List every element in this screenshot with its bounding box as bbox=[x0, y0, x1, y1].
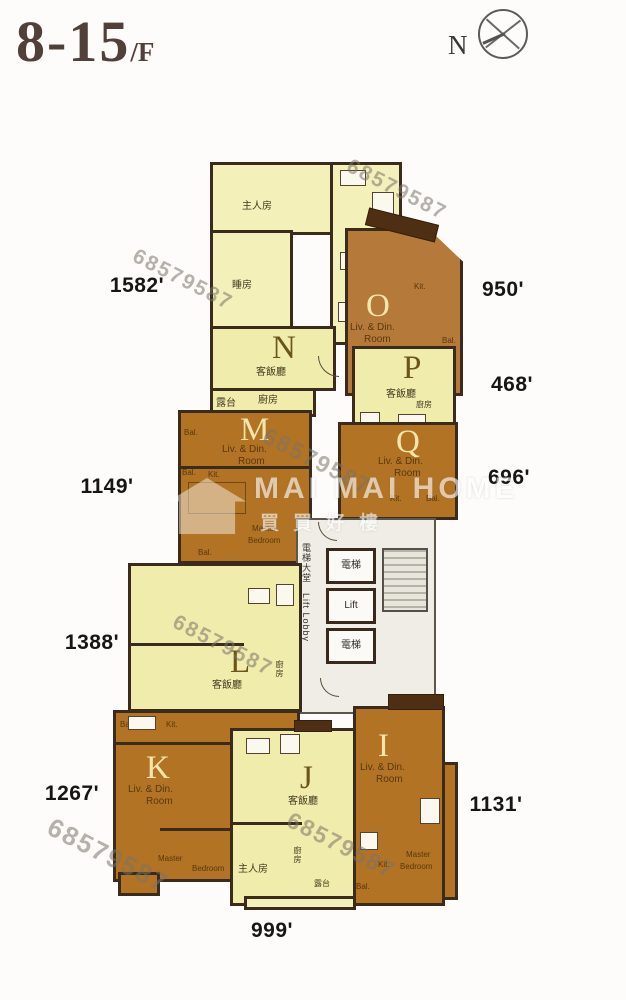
room-label-balcony: Bal. bbox=[356, 882, 370, 891]
room-label-master2: Bedroom bbox=[400, 862, 432, 871]
room-label-balcony: Bal. bbox=[198, 548, 212, 557]
staircase bbox=[382, 548, 428, 612]
area-label-l: 1388' bbox=[42, 631, 142, 655]
floorplan-page: 8-15/F N 主人房 睡房 N 客飯廳 露台 廚房 O Liv. & Din… bbox=[0, 0, 626, 1000]
brand-name: MAI MAI HOME bbox=[254, 472, 519, 506]
floor-range: 8-15 bbox=[16, 9, 130, 74]
compass-north-label: N bbox=[448, 30, 468, 61]
lobby-label-cn: 電梯大堂 bbox=[301, 543, 311, 583]
room-label-master: 主人房 bbox=[242, 197, 272, 212]
lift-shaft: 電梯 bbox=[326, 628, 376, 664]
unit-o-letter: O bbox=[366, 288, 390, 325]
room-label-kitchen: 廚房 bbox=[274, 660, 285, 678]
fixture bbox=[280, 734, 300, 754]
room-label-balcony: Bal. bbox=[442, 336, 456, 345]
wall-segment bbox=[388, 694, 444, 710]
room-label-living: Liv. & Din. bbox=[360, 762, 405, 773]
room-label-balcony: Bal. bbox=[184, 428, 198, 437]
area-label-o: 950' bbox=[458, 278, 548, 302]
area-label-m: 1149' bbox=[57, 475, 157, 499]
room-label-kitchen: 廚房 bbox=[258, 391, 278, 406]
room-label-living2: Room bbox=[146, 796, 173, 807]
unit-i-right-wing bbox=[442, 762, 458, 900]
room-label-kitchen: 廚房 bbox=[292, 846, 303, 864]
lobby-label-en: Lift Lobby bbox=[301, 593, 311, 642]
room-label-living: 客飯廳 bbox=[288, 792, 318, 807]
lift-shaft: 電梯 bbox=[326, 548, 376, 584]
unit-p-letter: P bbox=[403, 350, 421, 387]
unit-k-letter: K bbox=[146, 750, 170, 787]
floor-suffix: /F bbox=[130, 37, 154, 67]
room-label-master2: Bedroom bbox=[192, 864, 224, 873]
unit-n-master-room bbox=[210, 162, 335, 235]
fixture bbox=[246, 738, 270, 754]
unit-n-letter: N bbox=[272, 330, 296, 367]
room-label-living: 客飯廳 bbox=[212, 676, 242, 691]
compass-needle bbox=[482, 32, 505, 45]
fixture bbox=[420, 798, 440, 824]
area-label-i: 1131' bbox=[446, 793, 546, 817]
room-label-balcony: 露台 bbox=[216, 394, 236, 409]
room-label-kitchen: Kit. bbox=[414, 282, 426, 291]
unit-j-balcony-strip bbox=[244, 896, 356, 910]
unit-i-letter: I bbox=[378, 728, 389, 765]
room-label-living2: Room bbox=[376, 774, 403, 785]
fixture bbox=[276, 584, 294, 606]
room-label-master: Master bbox=[406, 850, 430, 859]
room-label-living: Liv. & Din. bbox=[350, 322, 395, 333]
room-label-kitchen: Kit. bbox=[166, 720, 178, 729]
compass-icon bbox=[478, 9, 528, 59]
area-label-k: 1267' bbox=[22, 782, 122, 806]
wall-segment bbox=[294, 720, 332, 732]
room-label-living2: Room bbox=[364, 334, 391, 345]
brand-watermark: MAI MAI HOME 買買好樓 bbox=[150, 464, 510, 544]
area-label-p: 468' bbox=[467, 373, 557, 397]
room-label-living: Liv. & Din. bbox=[128, 784, 173, 795]
room-label-bedroom: 睡房 bbox=[232, 276, 252, 291]
house-icon bbox=[168, 478, 246, 534]
area-label-j: 999' bbox=[222, 919, 322, 943]
room-label-master: 主人房 bbox=[238, 860, 268, 875]
fixture bbox=[128, 716, 156, 730]
room-label-master: Master bbox=[158, 854, 182, 863]
brand-name-cn: 買買好樓 bbox=[260, 508, 392, 535]
room-label-kitchen: 廚房 bbox=[416, 399, 432, 410]
room-label-balcony: 露台 bbox=[314, 878, 330, 889]
room-label-living: 客飯廳 bbox=[256, 363, 286, 378]
fixture bbox=[248, 588, 270, 604]
page-title: 8-15/F bbox=[16, 8, 154, 75]
compass: N bbox=[448, 6, 538, 66]
room-label-living: 客飯廳 bbox=[386, 385, 416, 400]
lift-shaft: Lift bbox=[326, 588, 376, 624]
